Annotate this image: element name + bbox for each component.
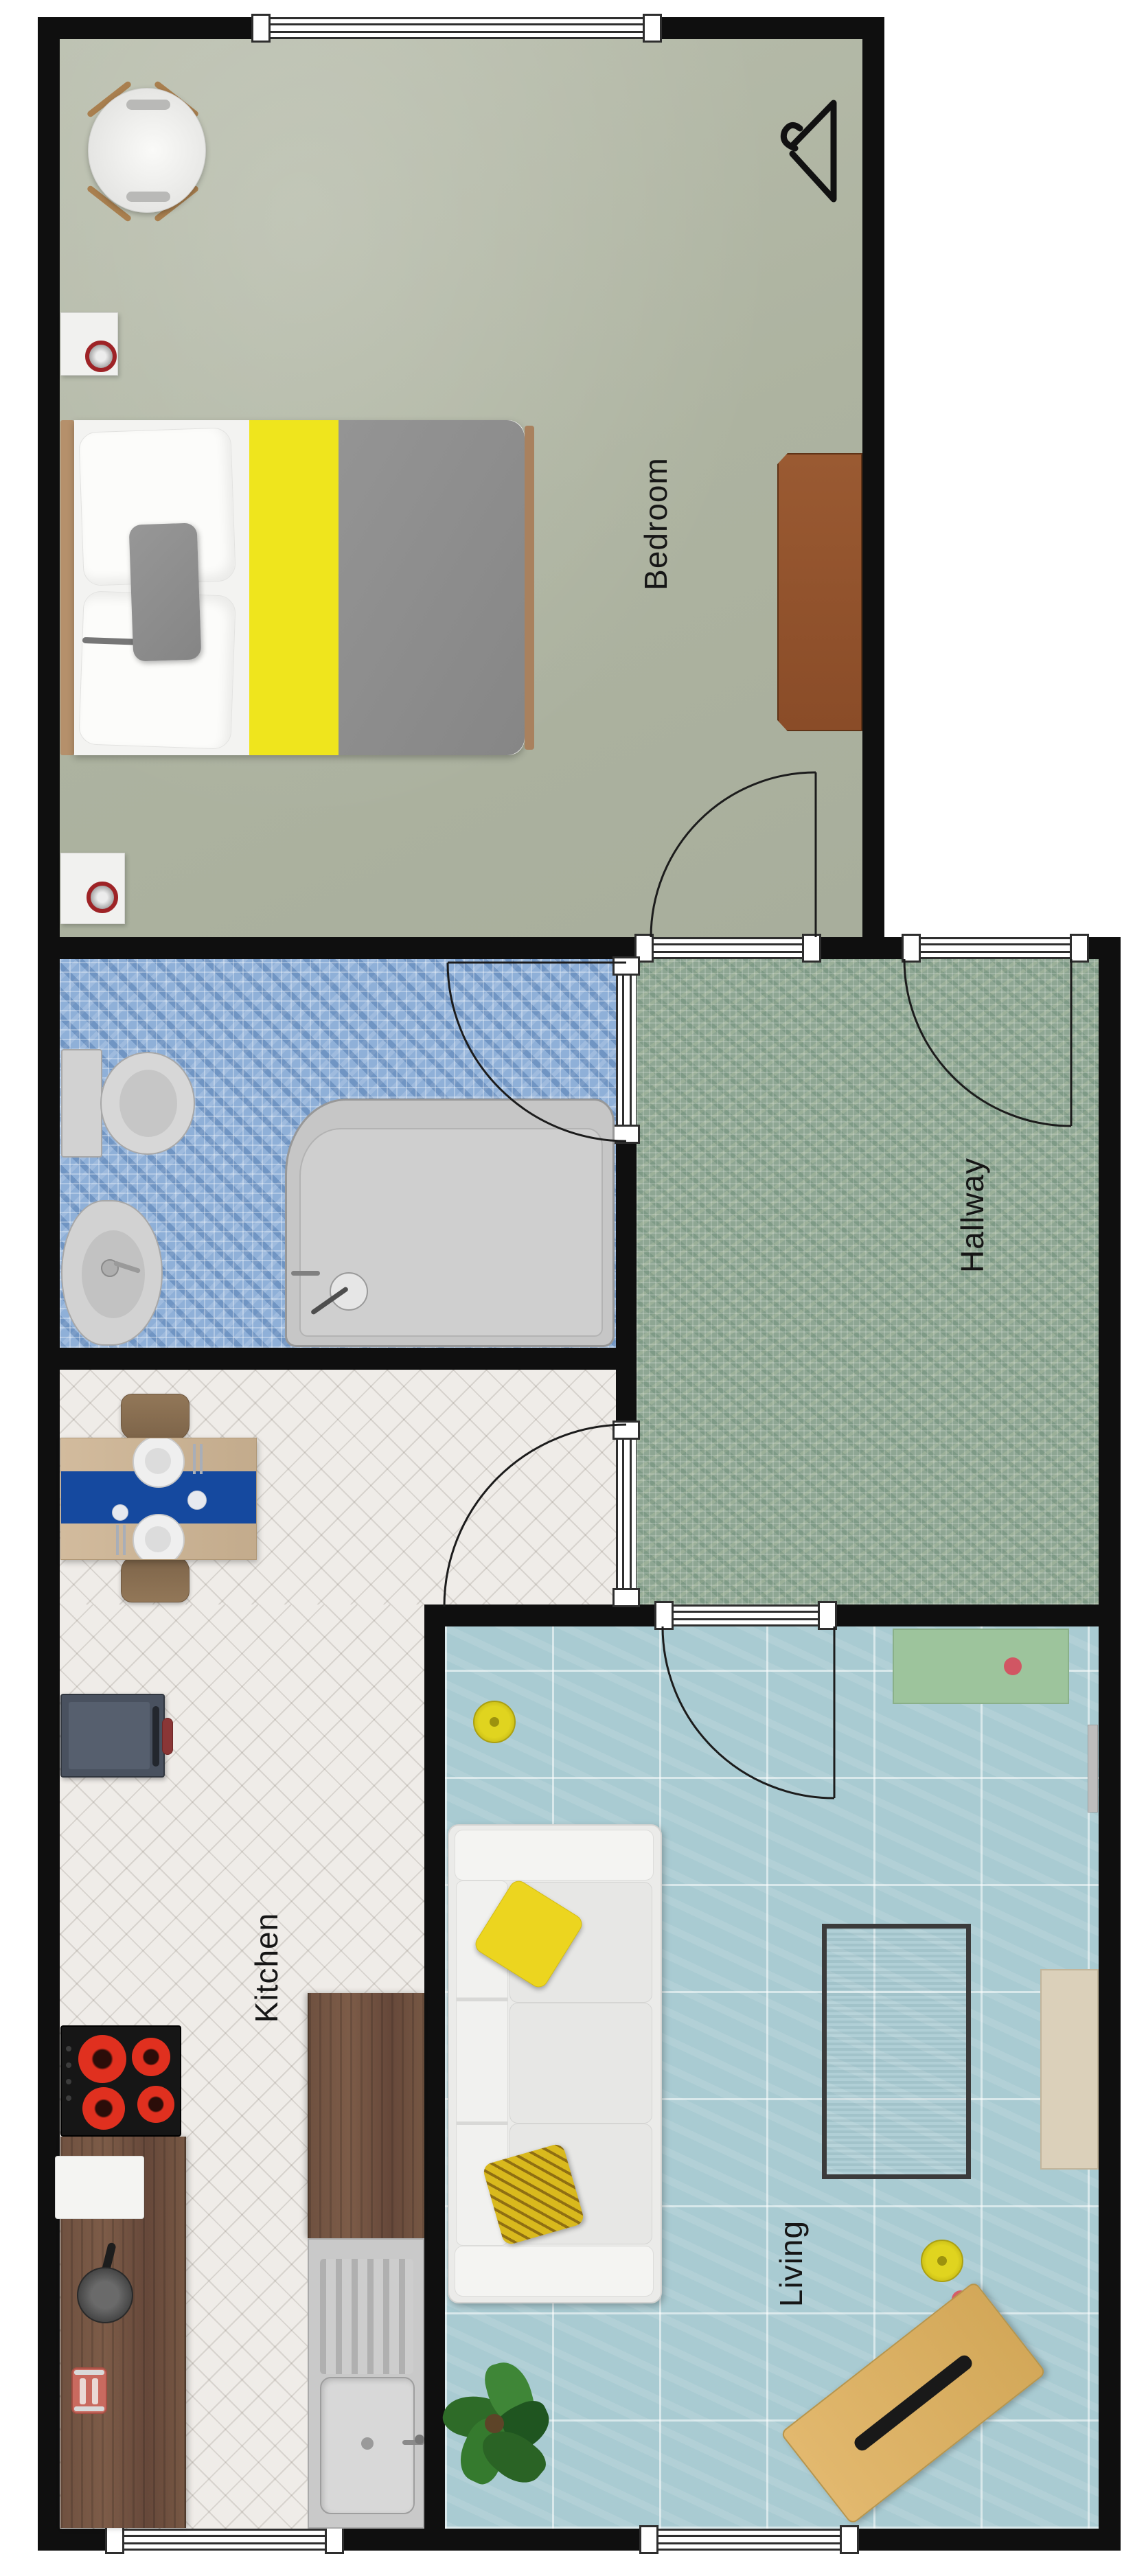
door-opening-bedroom [637, 937, 818, 959]
floor-plan: Bedroom Hallway Kitchen Living [0, 0, 1146, 2576]
dining-chair [121, 1394, 190, 1440]
sideboard [893, 1629, 1069, 1704]
cutlery [123, 1525, 126, 1555]
sideboard-bowl [1004, 1657, 1022, 1675]
wall-outer-bottom-mid [341, 2529, 642, 2551]
plant [439, 2369, 549, 2479]
pouf [473, 1701, 516, 1743]
radiator [1088, 1725, 1098, 1813]
bed-footboard [525, 426, 534, 750]
door-opening-front [904, 937, 1086, 959]
nightstand-lamp [85, 341, 117, 372]
wall-bathroom-kitchen [38, 1348, 637, 1370]
cutlery [116, 1525, 119, 1555]
wall-living-top-right [834, 1605, 1121, 1626]
hallway-floor [637, 959, 1099, 1605]
toilet-bowl [100, 1052, 195, 1155]
appliance-handle [152, 1706, 159, 1767]
media-bench [1040, 1969, 1099, 2170]
wall-bedroom-bathroom [38, 937, 637, 959]
grinder [77, 2267, 133, 2323]
nightstand-lamp [87, 882, 118, 913]
toaster [71, 2367, 107, 2414]
appliance-red-handle [162, 1718, 173, 1755]
burner [82, 2087, 125, 2130]
bathtub-faucet [291, 1271, 320, 1276]
sofa [448, 1824, 659, 2301]
plant-pot [485, 2414, 504, 2433]
room-label-bedroom: Bedroom [635, 421, 676, 627]
bed-headboard [60, 420, 74, 755]
armchair-slot [126, 192, 170, 202]
appliance-panel [69, 1702, 150, 1769]
burner [137, 2086, 174, 2123]
burner [78, 2035, 126, 2083]
sink-counter [308, 2238, 424, 2529]
wall-bedroom-hallway-junction [818, 937, 904, 959]
sink-basin [320, 2377, 415, 2514]
bed-blanket-yellow [249, 420, 339, 755]
toaster-slot [80, 2378, 86, 2404]
armchair-slot [126, 100, 170, 110]
rug [822, 1924, 971, 2179]
kitchen-appliance [60, 1694, 165, 1778]
cooktop-knob [66, 2062, 71, 2068]
wall-living-top-left [424, 1605, 657, 1626]
bathtub-drain [330, 1272, 368, 1311]
dining-chair [121, 1556, 190, 1602]
sink-faucet-base [415, 2435, 424, 2444]
toilet-tank [61, 1049, 102, 1158]
room-label-kitchen: Kitchen [246, 1865, 287, 2071]
bed-pillow-gray [129, 522, 202, 661]
cooktop-knob [66, 2046, 71, 2051]
window-living-bottom [642, 2529, 856, 2551]
sofa-armrest [455, 1830, 654, 1881]
window-kitchen-bottom [108, 2529, 341, 2551]
wall-outer-right [1099, 937, 1121, 2551]
plate [133, 1438, 185, 1488]
wall-outer-bottom-left [38, 2529, 108, 2551]
wall-bathroom-hallway [616, 1141, 637, 1423]
door-opening-living [657, 1605, 834, 1626]
pouf-button [490, 1717, 499, 1727]
bed-duvet [339, 420, 525, 755]
bidet [61, 1200, 163, 1346]
sink-drainer [320, 2259, 413, 2374]
plate-inner [145, 1448, 171, 1474]
cup [112, 1504, 128, 1521]
cooktop [60, 2025, 181, 2137]
pouf-button [937, 2256, 947, 2266]
pouf [921, 2240, 963, 2282]
bathtub [285, 1099, 615, 1347]
bedroom-dresser [777, 453, 862, 731]
wall-bedroom-right [862, 17, 884, 959]
plate-inner [145, 1526, 171, 1552]
cooktop-knob [66, 2095, 71, 2101]
cutlery [200, 1444, 203, 1474]
cutlery [193, 1444, 196, 1474]
room-label-hallway: Hallway [952, 1112, 993, 1318]
sink-drain [361, 2437, 374, 2450]
kitchen-counter-right [308, 1993, 424, 2238]
dining-table [60, 1438, 257, 1560]
window-bedroom-top [254, 17, 659, 39]
bedroom-armchair [88, 88, 206, 213]
toaster-cap [74, 2370, 104, 2375]
wall-outer-bottom-right [856, 2529, 1121, 2551]
cutting-board [55, 2156, 144, 2219]
cooktop-knob [66, 2079, 71, 2084]
burner [132, 2038, 170, 2076]
door-opening-kitchen [616, 1423, 637, 1605]
double-bed [60, 420, 534, 755]
plate [133, 1514, 185, 1560]
room-label-living: Living [770, 2161, 812, 2367]
door-opening-bathroom [616, 959, 637, 1141]
toaster-cap [74, 2406, 104, 2411]
sofa-seat-cushion [509, 2003, 652, 2124]
toaster-slot [92, 2378, 98, 2404]
sofa-armrest [455, 2246, 654, 2297]
toilet-bowl-inner [119, 1070, 177, 1137]
cup [187, 1491, 207, 1510]
